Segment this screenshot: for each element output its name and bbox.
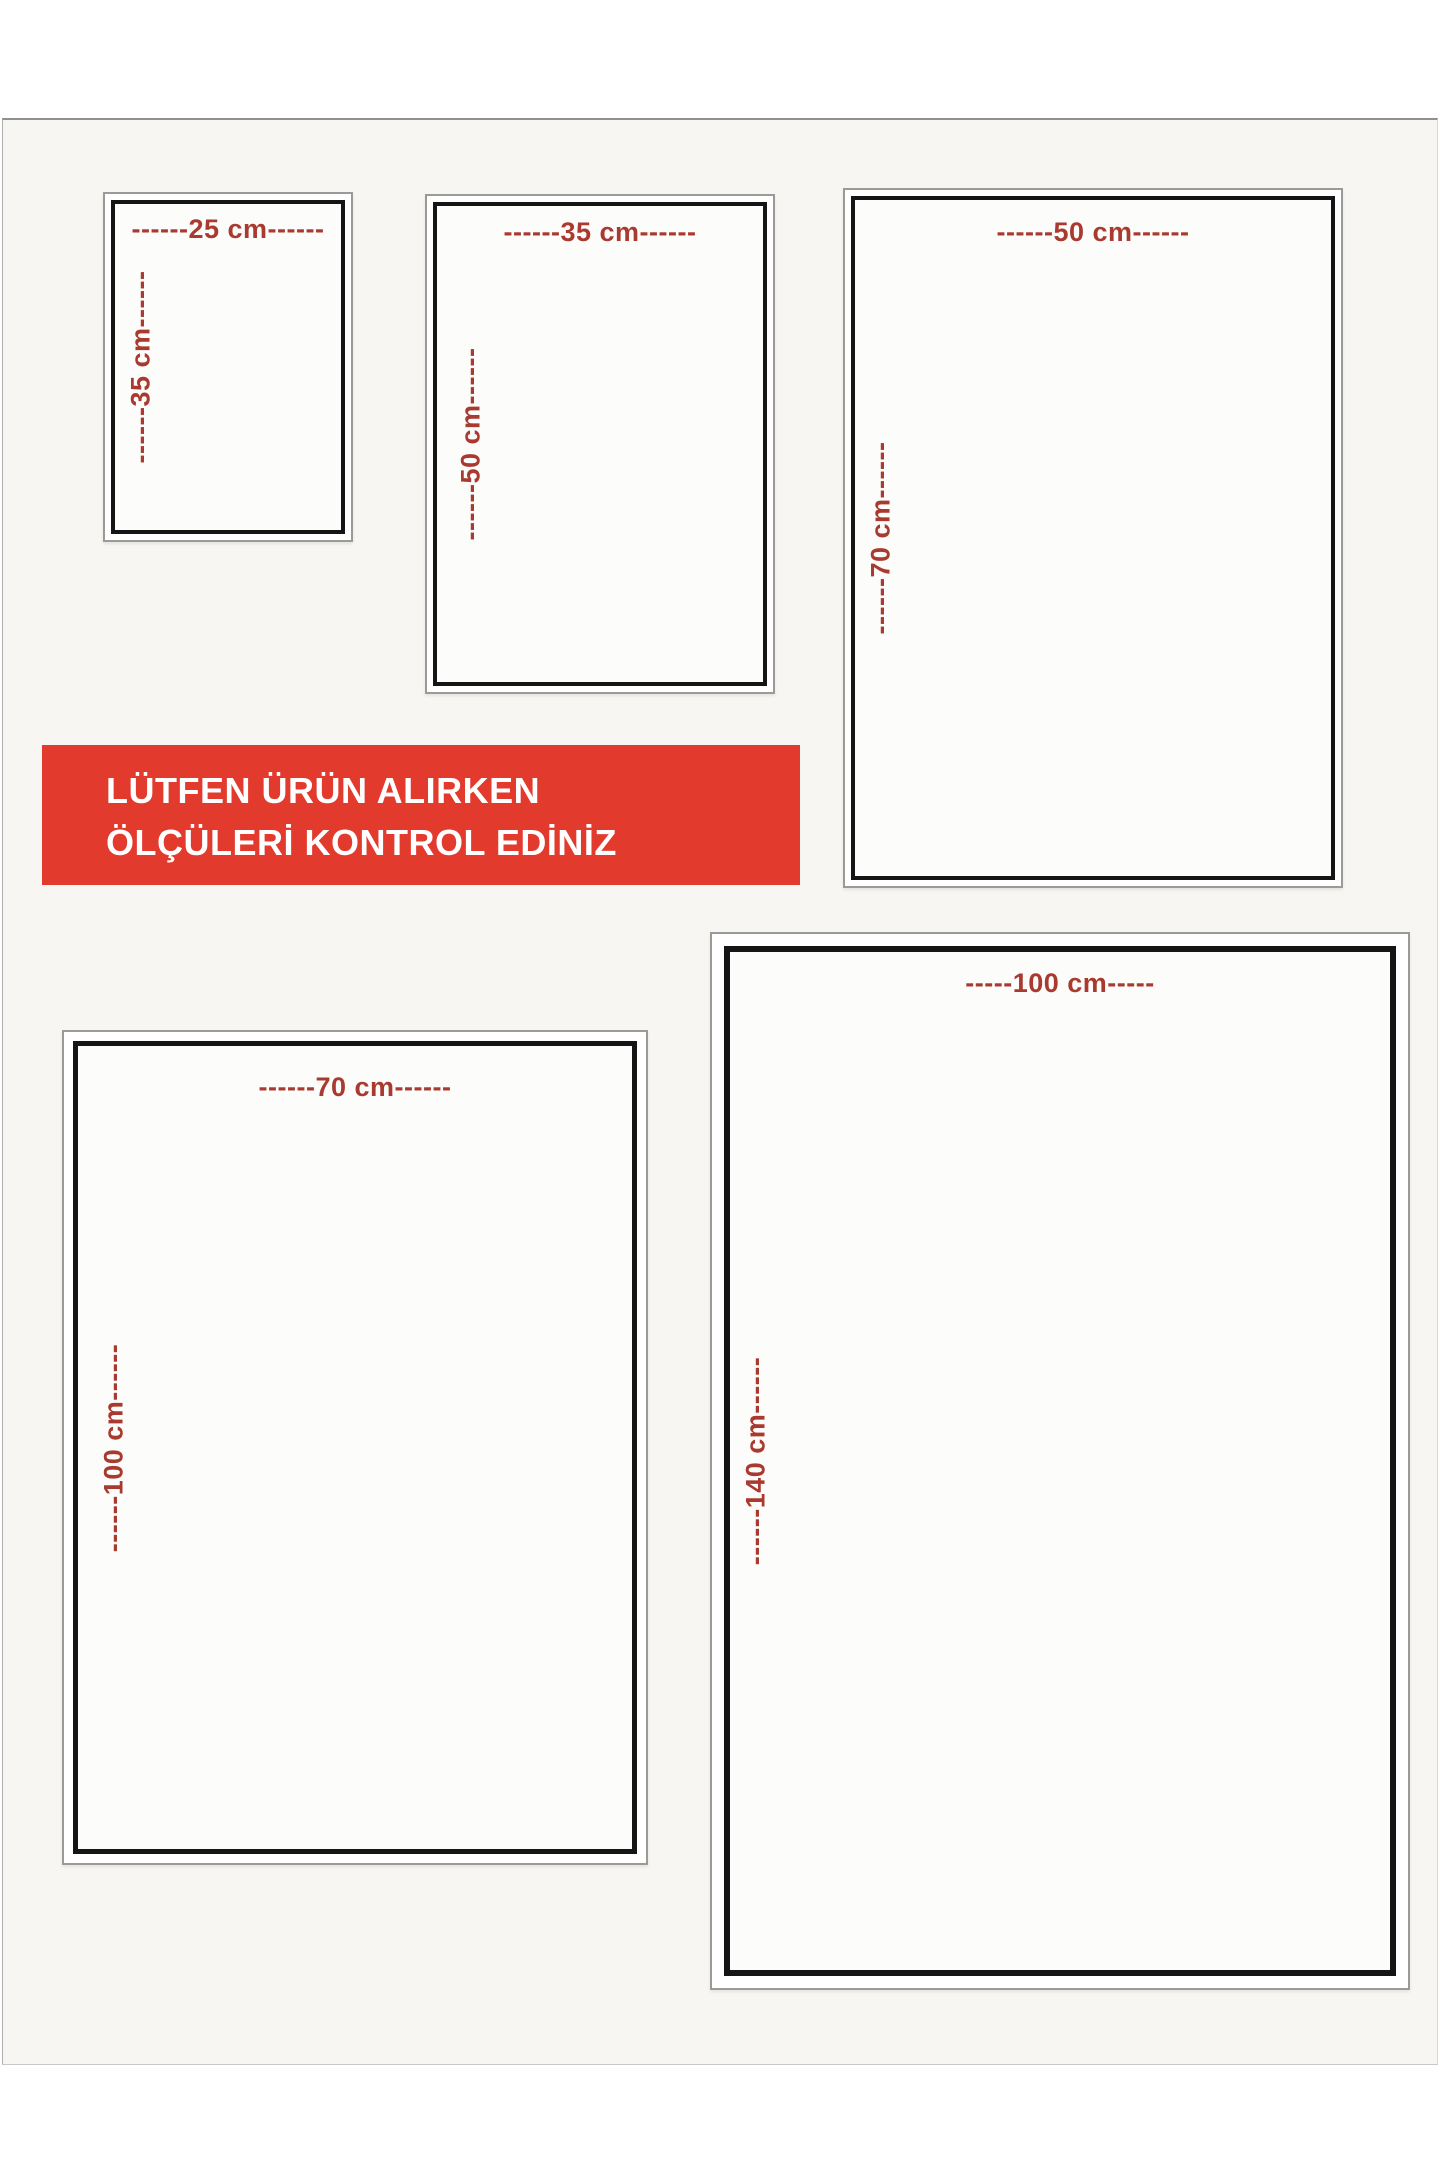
size-box-25x35: ------25 cm------ ------35 cm------ [103,192,353,542]
width-dimension-label: ------35 cm------ [427,217,773,248]
warning-banner-line-1: LÜTFEN ÜRÜN ALIRKEN [106,765,800,817]
height-dimension-label: ------140 cm------ [741,1357,772,1565]
size-box-50x70-frame [851,196,1335,880]
height-dimension-label: ------50 cm------ [456,348,487,541]
height-dimension-label: ------35 cm------ [126,271,157,464]
width-dimension-label: -----100 cm----- [712,968,1408,999]
size-box-70x100: ------70 cm------ ------100 cm------ [62,1030,648,1865]
height-dimension-label: ------100 cm------ [99,1343,130,1551]
size-box-70x100-frame [73,1041,637,1854]
size-box-100x140-frame [724,946,1396,1976]
width-dimension-label: ------25 cm------ [105,214,351,245]
size-box-50x70: ------50 cm------ ------70 cm------ [843,188,1343,888]
width-dimension-label: ------70 cm------ [64,1072,646,1103]
warning-banner-line-2: ÖLÇÜLERİ KONTROL EDİNİZ [106,817,800,869]
size-box-35x50: ------35 cm------ ------50 cm------ [425,194,775,694]
size-box-100x140: -----100 cm----- ------140 cm------ [710,932,1410,1990]
width-dimension-label: ------50 cm------ [845,217,1341,248]
height-dimension-label: ------70 cm------ [866,442,897,635]
warning-banner: LÜTFEN ÜRÜN ALIRKEN ÖLÇÜLERİ KONTROL EDİ… [42,745,800,885]
